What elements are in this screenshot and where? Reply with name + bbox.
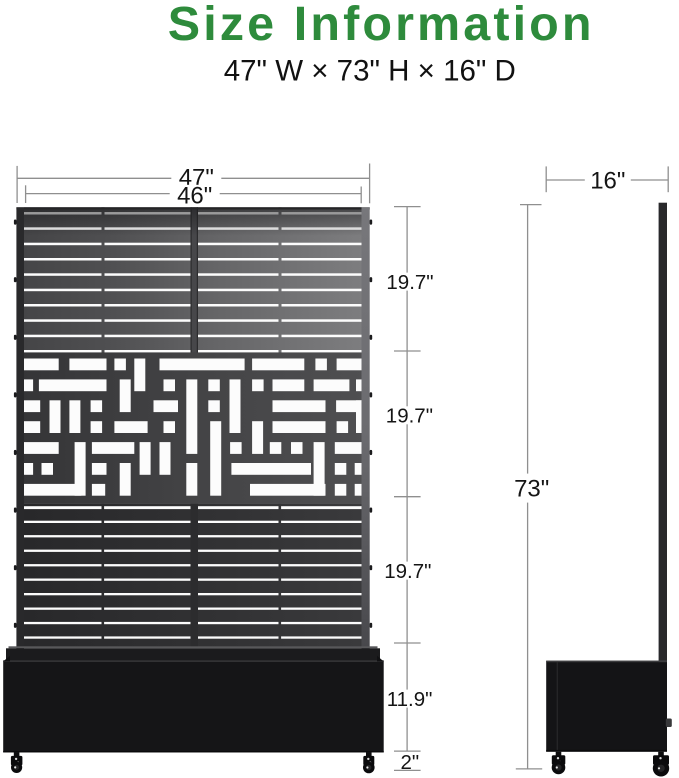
svg-text:Size Information: Size Information: [168, 0, 595, 51]
svg-text:47" W × 73" H × 16" D: 47" W × 73" H × 16" D: [224, 55, 516, 88]
svg-text:46": 46": [177, 182, 212, 209]
svg-text:11.9": 11.9": [387, 688, 433, 711]
svg-text:2": 2": [400, 751, 419, 774]
svg-text:19.7": 19.7": [386, 405, 433, 428]
svg-text:19.7": 19.7": [386, 271, 433, 294]
svg-text:16": 16": [590, 168, 625, 195]
svg-text:73": 73": [514, 476, 549, 503]
svg-text:19.7": 19.7": [384, 560, 431, 583]
